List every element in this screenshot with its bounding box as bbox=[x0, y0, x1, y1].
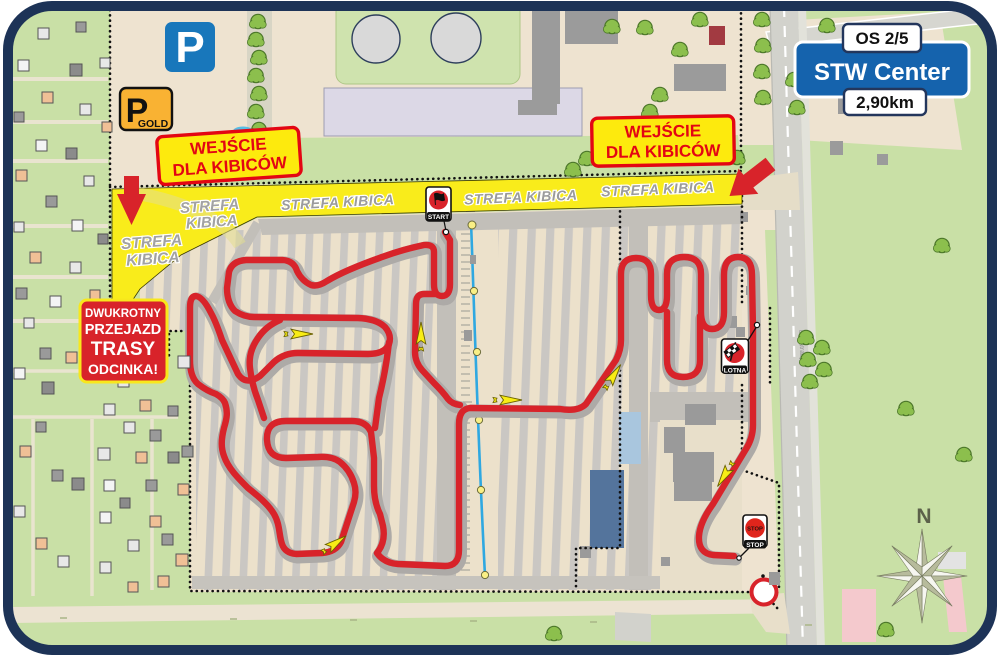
svg-text:TRASY: TRASY bbox=[91, 339, 156, 360]
svg-text:WEJŚCIE: WEJŚCIE bbox=[624, 121, 701, 141]
svg-text:GOLD: GOLD bbox=[138, 118, 169, 130]
svg-text:START: START bbox=[428, 214, 449, 221]
svg-text:N: N bbox=[916, 505, 931, 528]
svg-text:LOTNA: LOTNA bbox=[724, 368, 747, 375]
svg-text:DLA KIBICÓW: DLA KIBICÓW bbox=[606, 141, 722, 162]
svg-text:2,90km: 2,90km bbox=[856, 93, 914, 112]
svg-text:PRZEJAZD: PRZEJAZD bbox=[85, 322, 162, 338]
svg-text:P: P bbox=[175, 23, 204, 72]
svg-text:STOP: STOP bbox=[747, 527, 763, 533]
svg-text:ODCINKA!: ODCINKA! bbox=[88, 361, 158, 377]
svg-text:STW Center: STW Center bbox=[814, 59, 950, 86]
svg-text:KIBICA: KIBICA bbox=[185, 212, 238, 233]
svg-text:DWUKROTNY: DWUKROTNY bbox=[85, 308, 161, 320]
svg-text:OS 2/5: OS 2/5 bbox=[856, 29, 909, 48]
svg-text:STOP: STOP bbox=[746, 542, 764, 549]
